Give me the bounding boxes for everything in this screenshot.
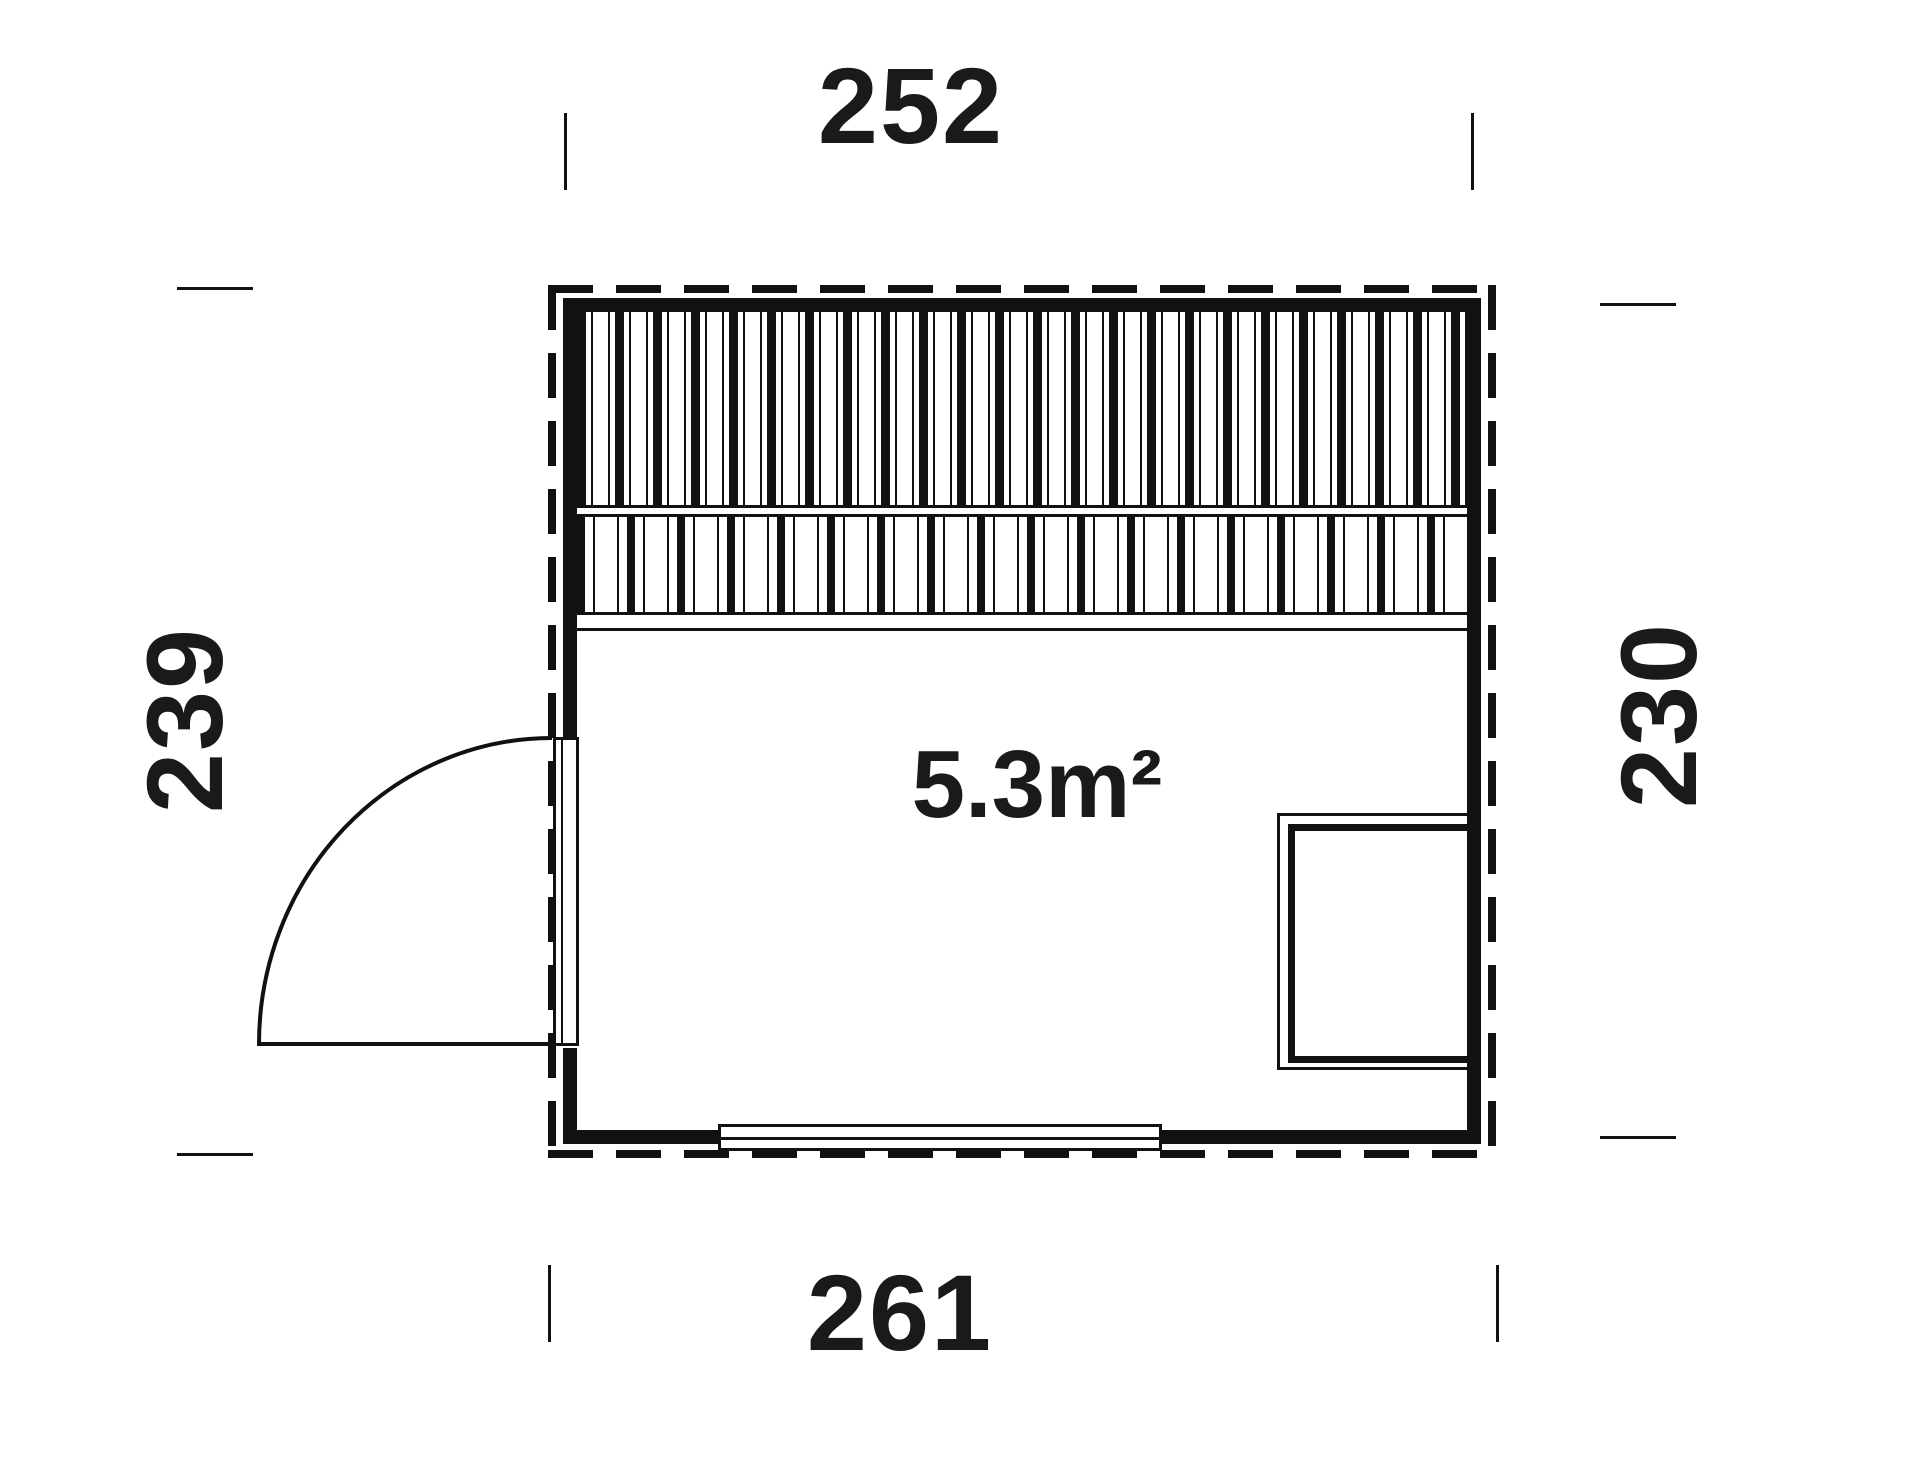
dimension-left-label: 239: [130, 570, 240, 870]
floor-plan-canvas: 252 261 239 230 5.3m²: [0, 0, 1920, 1469]
tick-right-bottom: [1600, 1136, 1676, 1139]
dimension-top-label: 252: [761, 51, 1061, 161]
door-leaf-inner-line: [561, 740, 563, 1043]
door-leaf: [553, 737, 579, 1046]
inner-wall-left-lower: [563, 1048, 577, 1144]
tick-top-left: [564, 113, 567, 190]
inner-wall-left-upper: [563, 298, 577, 737]
dimension-bottom-label: 261: [750, 1258, 1050, 1368]
floor-area-label: 5.3m²: [887, 735, 1187, 835]
bench-rail-line-1: [577, 505, 1467, 508]
heater-inner-frame: [1288, 824, 1467, 1063]
tick-top-right: [1471, 113, 1474, 190]
bench-lower-slats: [577, 517, 1467, 612]
bench-front-line-1: [577, 612, 1467, 615]
door-swing-arc: [257, 736, 555, 1048]
inner-wall-top: [563, 298, 1481, 312]
window: [718, 1124, 1162, 1151]
outer-dashed-wall-bottom: [548, 1150, 1496, 1158]
tick-bottom-left: [548, 1265, 551, 1342]
door-open-leaf-line: [257, 1042, 553, 1046]
inner-wall-right: [1467, 298, 1481, 1144]
bench-front-line-2: [577, 628, 1467, 631]
tick-left-bottom: [177, 1153, 253, 1156]
window-glazing-line: [721, 1137, 1159, 1140]
outer-dashed-wall-top: [548, 285, 1496, 293]
tick-right-top: [1600, 303, 1676, 306]
tick-bottom-right: [1496, 1265, 1499, 1342]
outer-dashed-wall-right: [1488, 285, 1496, 1158]
bench-upper-slats: [577, 312, 1467, 505]
dimension-right-label: 230: [1604, 565, 1714, 865]
tick-left-top: [177, 287, 253, 290]
